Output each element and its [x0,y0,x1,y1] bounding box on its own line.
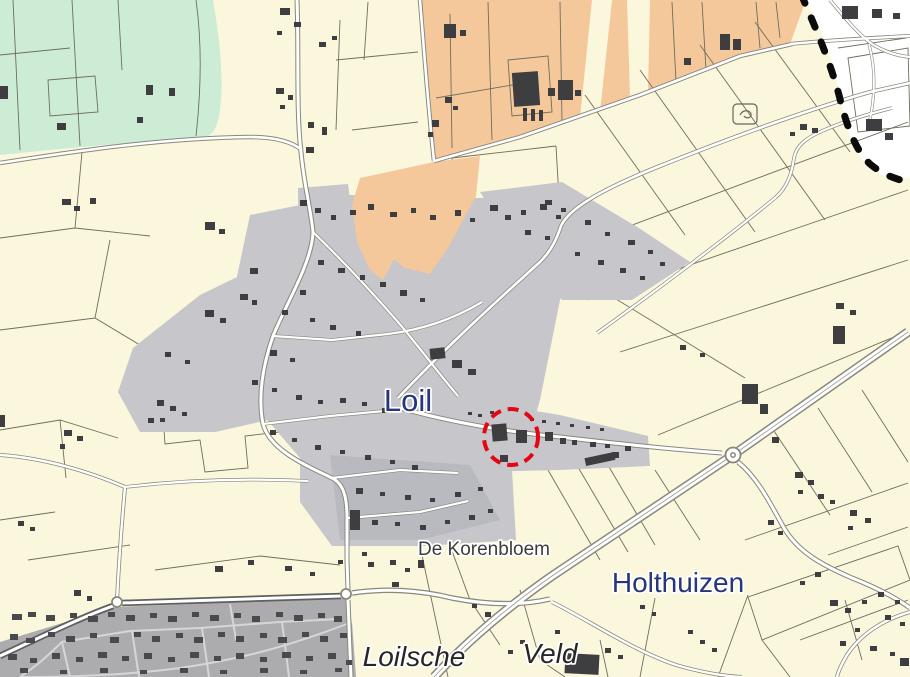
label-veld: Veld [522,638,578,669]
label-de-korenbloem: De Korenbloem [418,539,550,560]
label-loilsche: Loilsche [363,641,466,672]
map-viewport: Loil De Korenbloem Holthuizen Loilsche V… [0,0,910,677]
map-canvas: Loil De Korenbloem Holthuizen Loilsche V… [0,0,910,677]
label-holthuizen: Holthuizen [612,567,744,598]
label-loil: Loil [384,383,432,418]
region-green-fields [0,0,222,155]
parcel-strip [627,0,650,96]
